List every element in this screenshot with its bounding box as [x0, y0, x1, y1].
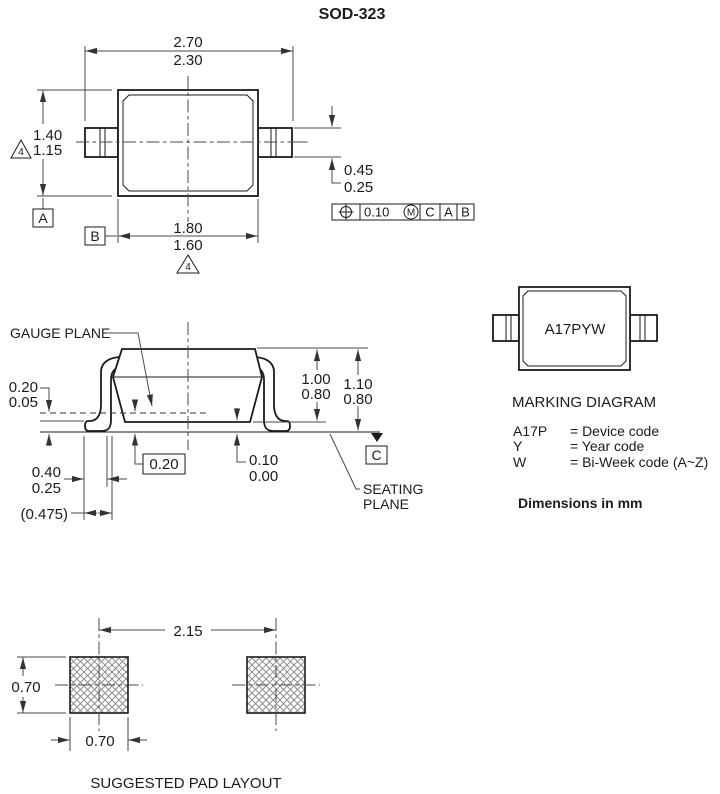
datum-letter: C [371, 447, 381, 463]
legend-meaning: = Device code [570, 423, 659, 439]
modifier-letter: M [407, 208, 415, 219]
bracket-line [40, 388, 49, 402]
seating-plane-label: PLANE [363, 496, 409, 512]
dim-lead-width: 0.45 0.25 [294, 106, 373, 196]
package-drawing-svg: SOD-323 2.70 2.30 [0, 0, 720, 794]
dim-value-min: 0.05 [9, 394, 38, 411]
fcf-datum-ref: A [444, 205, 453, 220]
dim-value-min: 0.00 [249, 468, 278, 485]
dim-value-min: 0.25 [32, 480, 61, 497]
dim-value: 0.70 [11, 679, 40, 696]
marking-diagram: A17PYW MARKING DIAGRAM A17P = Device cod… [493, 287, 708, 511]
bracket-line [135, 445, 143, 464]
package-marking-text: A17PYW [545, 321, 607, 338]
page-title: SOD-323 [319, 6, 386, 23]
leader-line [330, 434, 360, 489]
dim-lead-ref: (0.475) [20, 506, 111, 523]
bracket-line [332, 180, 341, 183]
units-note: Dimensions in mm [518, 495, 642, 511]
note-number: 4 [185, 262, 191, 273]
datum-triangle [371, 433, 383, 442]
dim-value-min: 1.15 [33, 142, 62, 159]
bracket-line [237, 447, 246, 462]
drawing-sheet: SOD-323 2.70 2.30 [0, 0, 720, 794]
datum-c: C [366, 433, 387, 464]
dim-value: 0.70 [85, 733, 114, 750]
marking-heading: MARKING DIAGRAM [512, 394, 656, 411]
marking-legend: A17P = Device code Y = Year code W = Bi-… [513, 423, 708, 470]
dim-value-min: 0.80 [343, 391, 372, 408]
datum-letter: B [90, 228, 99, 244]
dim-value-max: 0.40 [32, 464, 61, 481]
pad-layout: 2.15 0.70 0.70 SUGGESTED PAD LAYOUT [11, 618, 320, 792]
datum-b: B [85, 227, 117, 245]
top-view: 2.70 2.30 4 1.40 1.15 A 1.80 1.60 4 [11, 34, 474, 273]
fcf-datum-ref: C [425, 205, 434, 220]
dim-pad-pitch: 2.15 [100, 623, 276, 640]
fcf-tolerance: 0.10 [364, 205, 389, 220]
dim-value-min: 2.30 [173, 52, 202, 69]
legend-code: W [513, 454, 527, 470]
datum-letter: A [38, 210, 48, 226]
dim-value-max: 2.70 [173, 34, 202, 51]
legend-code: A17P [513, 423, 547, 439]
dim-value-max: 1.80 [173, 220, 202, 237]
feature-control-frame: 0.10 M C A B [332, 204, 474, 220]
dim-value-min: 0.80 [301, 386, 330, 403]
fcf-datum-ref: B [461, 205, 470, 220]
seating-plane-label: SEATING [363, 481, 423, 497]
dim-value-min: 1.60 [173, 237, 202, 254]
note-number: 4 [18, 147, 24, 158]
pad-layout-caption: SUGGESTED PAD LAYOUT [90, 775, 281, 792]
dim-value: 2.15 [173, 623, 202, 640]
lead-outline [630, 315, 657, 341]
dim-total-height: 1.10 0.80 [343, 350, 372, 431]
legend-code: Y [513, 438, 523, 454]
legend-meaning: = Year code [570, 438, 645, 454]
dim-value-min: 0.25 [344, 179, 373, 196]
side-view: GAUGE PLANE 0.20 0.05 1.00 0.80 1.10 0.8… [9, 322, 424, 523]
true-position-icon [339, 205, 354, 220]
dim-value-max: 0.10 [249, 452, 278, 469]
marking-package-outline: A17PYW [493, 287, 657, 370]
dim-value-ref: (0.475) [20, 506, 68, 523]
gauge-plane-label: GAUGE PLANE [10, 325, 110, 341]
legend-meaning: = Bi-Week code (A~Z) [570, 454, 708, 470]
dim-value-max: 0.45 [344, 162, 373, 179]
datum-a: A [33, 198, 53, 227]
mmc-modifier-icon: M [404, 205, 418, 219]
dim-value-basic: 0.20 [149, 456, 178, 473]
